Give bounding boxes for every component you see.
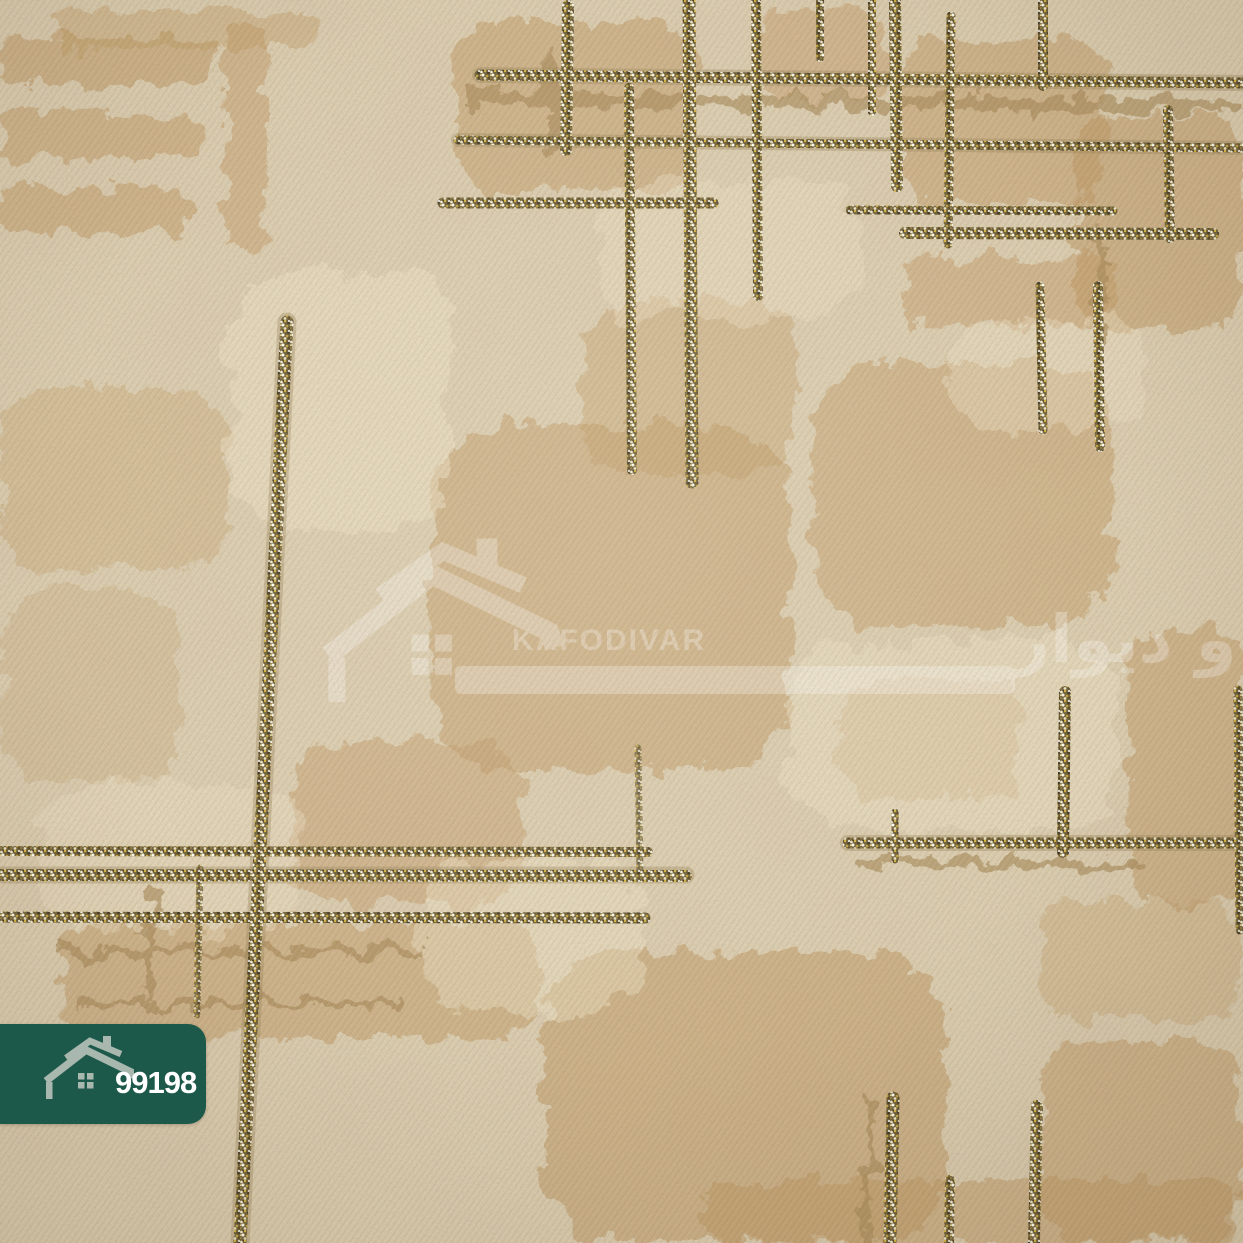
product-code: 99198 bbox=[115, 1067, 196, 1098]
product-code-badge: 99198 bbox=[0, 1024, 206, 1124]
wallpaper-photo: KAFODIVAR کف و دیوار 99198 bbox=[0, 0, 1243, 1243]
